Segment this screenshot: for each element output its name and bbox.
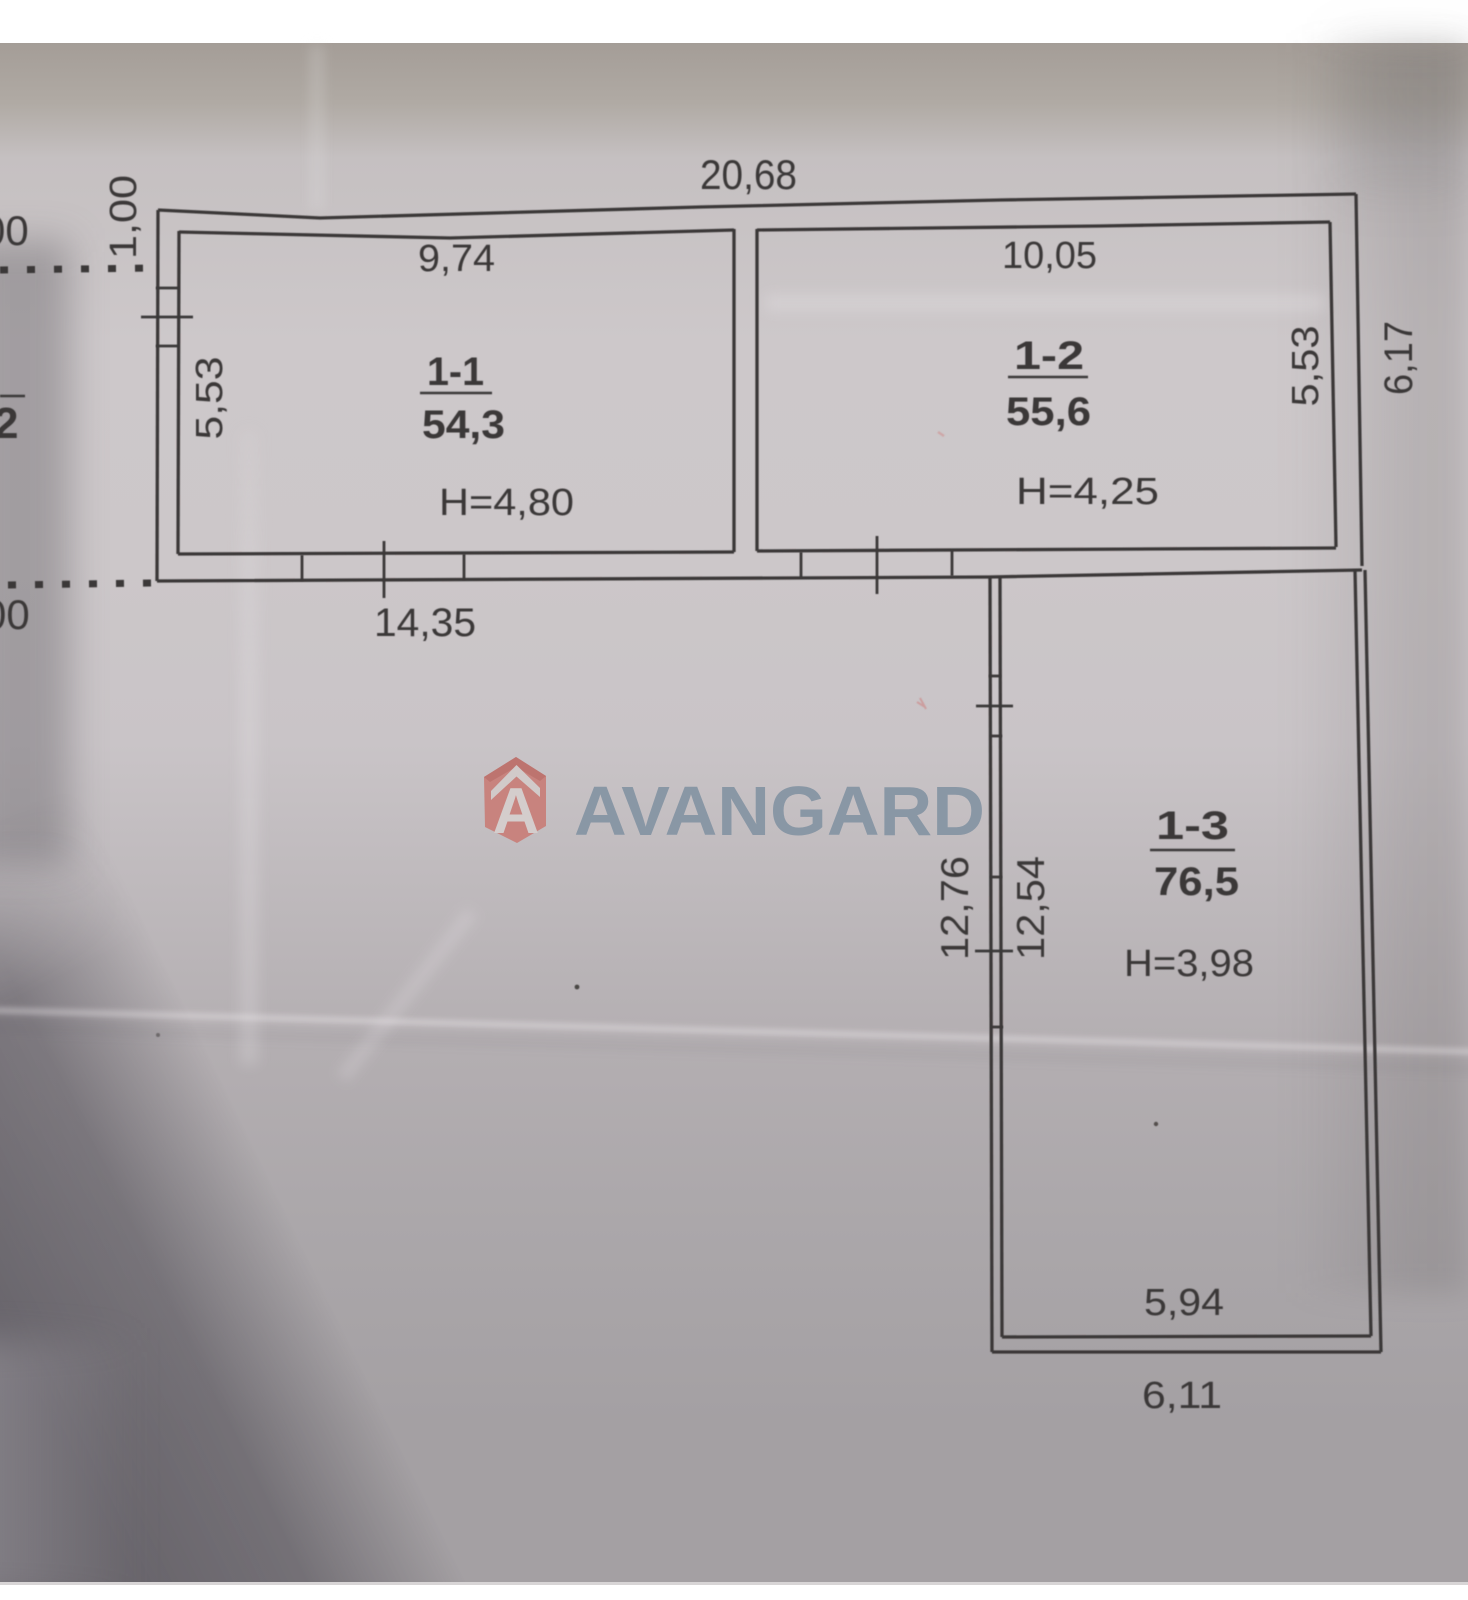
svg-text:9,74: 9,74 (418, 238, 495, 280)
svg-text:1,00: 1,00 (103, 175, 145, 259)
svg-text:20,68: 20,68 (700, 151, 797, 198)
svg-text:55,6: 55,6 (1006, 390, 1091, 434)
svg-text:54,3: 54,3 (422, 403, 505, 447)
svg-text:1-3: 1-3 (1156, 804, 1229, 848)
svg-text:14,35: 14,35 (374, 601, 476, 645)
svg-text:5,53: 5,53 (189, 357, 231, 440)
svg-text:H=4,25: H=4,25 (1016, 471, 1159, 513)
svg-text:1-2: 1-2 (1014, 334, 1084, 378)
svg-text:76,5: 76,5 (1154, 860, 1239, 904)
svg-text:5,53: 5,53 (1285, 326, 1327, 407)
svg-text:12,76: 12,76 (934, 856, 977, 960)
svg-text:10,05: 10,05 (1002, 235, 1097, 277)
svg-text:H=4,80: H=4,80 (439, 482, 574, 524)
svg-text:2: 2 (0, 399, 18, 448)
svg-text:12,54: 12,54 (1010, 856, 1053, 960)
svg-text:H=3,98: H=3,98 (1124, 943, 1254, 985)
svg-text:6,17: 6,17 (1377, 321, 1421, 395)
svg-text:6,11: 6,11 (1142, 1375, 1222, 1417)
svg-text:5,94: 5,94 (1144, 1282, 1224, 1324)
svg-text:AVANGARD: AVANGARD (574, 772, 985, 850)
svg-text:1-1: 1-1 (427, 350, 484, 394)
svg-text:A: A (493, 774, 540, 847)
svg-text:00: 00 (0, 591, 30, 638)
svg-text:00: 00 (0, 207, 29, 254)
